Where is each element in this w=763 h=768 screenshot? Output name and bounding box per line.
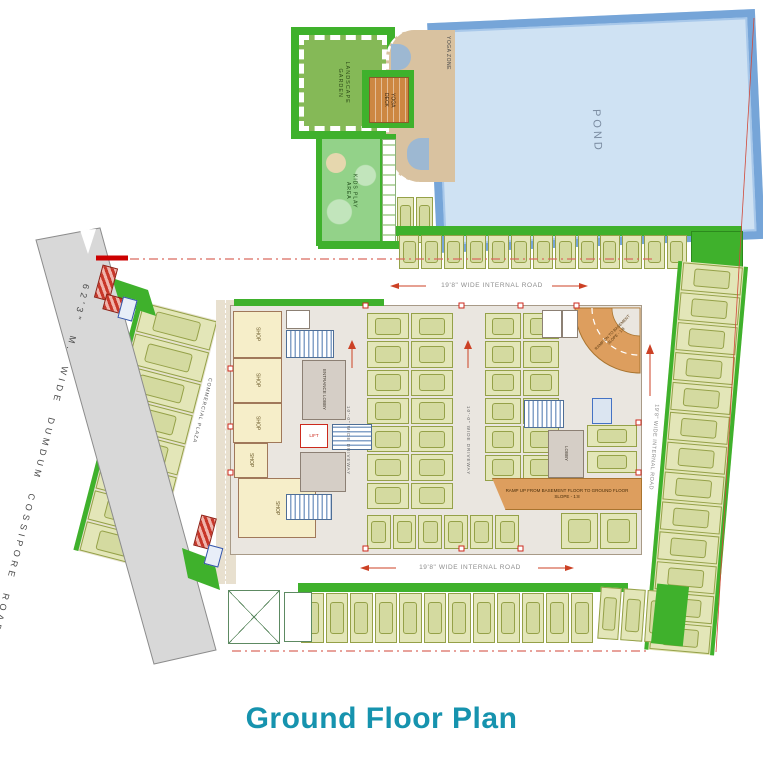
staircase xyxy=(286,330,334,358)
shop-unit: SHOP xyxy=(234,443,268,478)
driveway-label-right: 10'-0" WIDE DRIVEWAY xyxy=(462,378,474,504)
utility-room-bottom xyxy=(284,592,312,642)
utility-platform xyxy=(228,590,280,644)
entrance-lobby: ENTRANCE LOBBY xyxy=(302,360,346,420)
internal-road-label-right-text: 19'8" WIDE INTERNAL ROAD xyxy=(647,404,660,490)
shop-label: SHOP xyxy=(254,327,260,341)
utility-room-east2 xyxy=(562,310,578,338)
shop-label: SHOP xyxy=(254,373,260,387)
car-lift xyxy=(592,398,612,424)
shop-unit: SHOP xyxy=(233,311,282,358)
lobby-label: LOBBY xyxy=(563,446,569,461)
utility-room-east xyxy=(542,310,562,338)
shop-label: SHOP xyxy=(254,416,260,430)
internal-road-label-bottom: 19'8" WIDE INTERNAL ROAD xyxy=(402,563,538,573)
shop-unit: SHOP xyxy=(233,403,282,443)
ramp-up: RAMP UP FROM BASEMENT FLOOR TO GROUND FL… xyxy=(492,478,642,510)
shop-unit: SHOP xyxy=(233,358,282,403)
driveway-label-left: 10'-0" WIDE DRIVEWAY xyxy=(342,378,354,504)
site-plan-canvas: POND LANDSCAPE GARDEN YOGA ZONE YOGA DEC… xyxy=(0,0,763,768)
service-room xyxy=(300,452,346,492)
lift-box: LIFT xyxy=(300,424,328,448)
shop-label: SHOP xyxy=(248,453,254,467)
plan-linework xyxy=(0,0,763,768)
ramp-up-line2: SLOPE - 1:8 xyxy=(554,494,579,500)
staircase xyxy=(524,400,564,428)
plan-title: Ground Floor Plan xyxy=(0,702,763,736)
shop-label: SHOP xyxy=(274,501,280,515)
entrance-lobby-label: ENTRANCE LOBBY xyxy=(321,369,327,410)
driveway-label-left-text: 10'-0" WIDE DRIVEWAY xyxy=(345,406,351,475)
lift-label: LIFT xyxy=(309,433,318,439)
lift-lobby: LOBBY xyxy=(548,430,584,478)
driveway-label-right-text: 10'-0" WIDE DRIVEWAY xyxy=(465,406,471,475)
internal-road-label-top: 19'8" WIDE INTERNAL ROAD xyxy=(432,281,552,291)
staircase xyxy=(286,494,332,520)
utility-room-top xyxy=(286,310,310,329)
